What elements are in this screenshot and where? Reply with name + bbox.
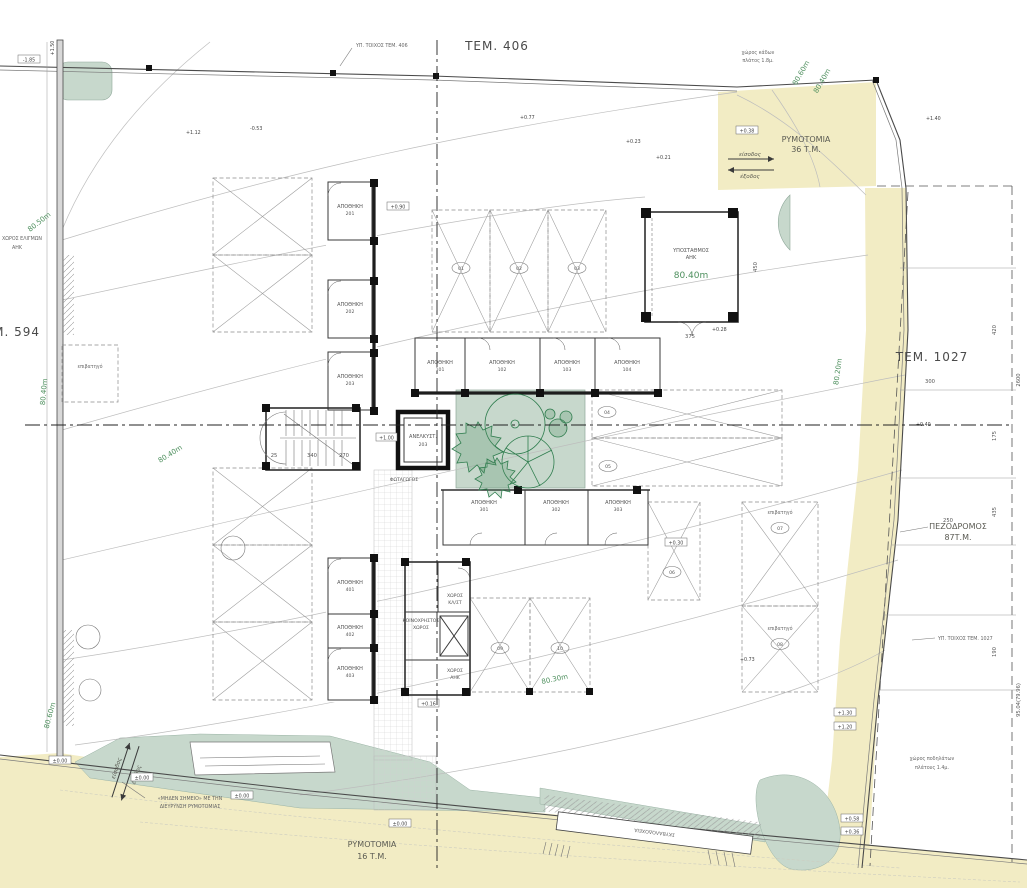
parcel-right-label: ΤΕΜ. 1027 xyxy=(895,350,968,364)
room-mid1-name: ΑΠΟΘΗΚΗ xyxy=(427,360,453,366)
room-mid3-name: ΑΠΟΘΗΚΗ xyxy=(554,360,580,366)
elevation-p021: +0.21 xyxy=(656,155,671,161)
substation-label-2: ΑΗΚ xyxy=(686,255,697,261)
room-court1-name: ΑΠΟΘΗΚΗ xyxy=(471,500,497,506)
room-nw2-num: 202 xyxy=(346,309,355,315)
stall-06: 06 xyxy=(669,570,675,576)
stall-03: 03 xyxy=(574,266,580,272)
elevation-p150: +1.50 xyxy=(50,41,56,56)
elevation-p130: +1.30 xyxy=(834,708,856,717)
access-exit-top: έξοδος xyxy=(740,173,760,180)
svg-text:±0.00: ±0.00 xyxy=(235,794,250,800)
contour-80-50: 80.50m xyxy=(26,211,52,234)
mech-room-label-2: ΚΛ/ΣΤ xyxy=(448,600,462,606)
note-bins-1: χώρος κάδων xyxy=(742,49,775,56)
elevation-p112: +1.12 xyxy=(186,130,201,136)
elevation-p140: +1.40 xyxy=(926,116,941,122)
elevation-p120: +1.20 xyxy=(834,722,856,731)
stall-type-right2: επιβατηγό xyxy=(767,625,792,632)
room-sw2-num: 402 xyxy=(346,632,355,638)
room-court2-num: 302 xyxy=(552,507,561,513)
substation-building: ΥΠΟΣΤΑΘΜΟΣ ΑΗΚ 80.40m xyxy=(641,208,738,336)
room-sw3-num: 403 xyxy=(346,673,355,679)
note-maneuver-1: ΧΩΡΟΣ ΕΛΙΓΜΩΝ xyxy=(2,236,42,242)
contour-80-40-left: 80.40m xyxy=(39,378,49,406)
room-court3-num: 303 xyxy=(614,507,623,513)
entrance-ramp xyxy=(190,742,335,775)
room-mid3-num: 103 xyxy=(563,367,572,373)
svg-text:±0.00: ±0.00 xyxy=(53,759,68,765)
room-nw3-name: ΑΠΟΘΗΚΗ xyxy=(337,374,363,380)
svg-text:±0.00: ±0.00 xyxy=(135,776,150,782)
room-nw1-num: 201 xyxy=(346,211,355,217)
elevation-zero-3: ±0.00 xyxy=(231,791,253,800)
zone-rymotomia-bottom-name: ΡΥΜΟΤΟΜΙΑ xyxy=(348,840,397,849)
parcel-top-label: ΤΕΜ. 406 xyxy=(464,39,529,53)
substation-label-1: ΥΠΟΣΤΑΘΜΟΣ xyxy=(672,248,709,254)
note-maneuver-2: ΑΗΚ xyxy=(12,245,23,251)
stall-05: 05 xyxy=(605,464,611,470)
room-nw2-name: ΑΠΟΘΗΚΗ xyxy=(337,302,363,308)
svg-text:±0.00: ±0.00 xyxy=(393,822,408,828)
mech-room-label-1: ΧΩΡΟΣ xyxy=(447,593,463,599)
contour-80-40-mid: 80.40m xyxy=(157,444,184,465)
elevation-p023: +0.23 xyxy=(626,139,641,145)
room-mid4-name: ΑΠΟΘΗΚΗ xyxy=(614,360,640,366)
elevation-p100-text: +1.00 xyxy=(379,436,394,442)
elevation-zero-4: ±0.00 xyxy=(389,819,411,828)
building-mid-row: ΑΠΟΘΗΚΗ 101 ΑΠΟΘΗΚΗ 102 ΑΠΟΘΗΚΗ 103 ΑΠΟΘ… xyxy=(411,338,662,397)
stall-10: 10 xyxy=(557,646,563,652)
zone-pezodromos: ΠΕΖΟΔΡΟΜΟΣ 87Τ.Μ. xyxy=(900,522,987,542)
note-top-wall: ΥΠ. ΤΟΙΧΟΣ ΤΕΜ. 406 xyxy=(355,43,408,49)
svg-text:+0.90: +0.90 xyxy=(391,205,406,211)
building-court-row: ΑΠΟΘΗΚΗ 301 ΑΠΟΘΗΚΗ 302 ΑΠΟΘΗΚΗ 303 xyxy=(441,486,650,545)
stall-type-left: επιβατηγό xyxy=(77,363,102,370)
zone-rymotomia-top-name: ΡΥΜΟΤΟΜΙΑ xyxy=(782,135,831,144)
dim-2600: 2600 xyxy=(1016,373,1022,386)
elevation-p030: +0.30 xyxy=(665,538,687,547)
elevation-p016-text: +0.16 xyxy=(421,702,436,708)
note-right-wall: ΥΠ. ΤΟΙΧΟΣ ΤΕΜ. 1027 xyxy=(937,636,993,642)
svg-text:+1.20: +1.20 xyxy=(838,725,853,731)
zone-pezodromos-area: 87Τ.Μ. xyxy=(944,533,971,542)
room-mid2-num: 102 xyxy=(498,367,507,373)
access-entry-top: είσοδος xyxy=(739,151,762,158)
elevator-num: 203 xyxy=(419,442,428,448)
dim-340: 340 xyxy=(307,453,317,459)
elevator-label: ΑΝΕΛΚΥΣΤ. xyxy=(409,434,437,440)
contour-80-60-topright: 80.60m xyxy=(791,59,811,86)
stall-09: 09 xyxy=(497,646,503,652)
elevation-p090: +0.90 xyxy=(387,202,409,211)
dim-total: 95.04(79.96) xyxy=(1016,683,1022,717)
contour-80-20-right: 80.20m xyxy=(832,358,844,386)
elevation-p077: +0.77 xyxy=(520,115,535,121)
site-plan-page: 420 175 435 190 2600 95.04(79.96) 300 25… xyxy=(0,0,1027,888)
stall-01: 01 xyxy=(458,266,464,272)
note-bins-2: πλάτος 1.8μ. xyxy=(742,57,773,64)
dim-300: 300 xyxy=(925,379,935,385)
elevation-p028: +0.28 xyxy=(712,327,727,333)
zone-pezodromos-name: ΠΕΖΟΔΡΟΜΟΣ xyxy=(929,522,987,531)
note-bike-1: χώρος ποδηλάτων xyxy=(910,755,955,762)
dim-270: 270 xyxy=(339,453,349,459)
svg-text:+0.36: +0.36 xyxy=(845,830,860,836)
dim-25: 25 xyxy=(271,453,278,459)
building-nw-block: ΑΠΟΘΗΚΗ 201 ΑΠΟΘΗΚΗ 202 ΑΠΟΘΗΚΗ 203 xyxy=(326,179,378,415)
svg-text:+0.30: +0.30 xyxy=(669,541,684,547)
elevation-p073: +0.73 xyxy=(740,657,755,663)
room-sw2-name: ΑΠΟΘΗΚΗ xyxy=(337,625,363,631)
elevation-p040: +0.40 xyxy=(916,422,931,428)
stall-02: 02 xyxy=(516,266,522,272)
elevation-p058: +0.58 xyxy=(841,814,863,823)
room-court1-num: 301 xyxy=(480,507,489,513)
elevation-m185: -1.85 xyxy=(18,55,40,64)
lightwell-label: ΦΩΤΑΓΩΓΟΣ xyxy=(390,477,418,483)
room-nw1-name: ΑΠΟΘΗΚΗ xyxy=(337,204,363,210)
dim-175: 175 xyxy=(992,431,998,441)
room-court3-name: ΑΠΟΘΗΚΗ xyxy=(605,500,631,506)
elevation-zero-2: ±0.00 xyxy=(131,773,153,782)
contour-80-30-bottom: 80.30m xyxy=(541,673,569,686)
elevation-p016: +0.16 xyxy=(418,699,439,708)
room-mid2-name: ΑΠΟΘΗΚΗ xyxy=(489,360,515,366)
room-nw3-num: 203 xyxy=(346,381,355,387)
contour-label-substation: 80.40m xyxy=(674,271,709,281)
svg-text:+1.30: +1.30 xyxy=(838,711,853,717)
ahk-room-label-1: ΧΩΡΟΣ xyxy=(447,668,463,674)
room-sw1-num: 401 xyxy=(346,587,355,593)
room-mid4-num: 104 xyxy=(623,367,632,373)
dim-450: 450 xyxy=(753,262,759,272)
room-court2-name: ΑΠΟΘΗΚΗ xyxy=(543,500,569,506)
stall-07: 07 xyxy=(777,526,783,532)
room-sw3-name: ΑΠΟΘΗΚΗ xyxy=(337,666,363,672)
svg-text:+0.38: +0.38 xyxy=(740,129,755,135)
stall-type-right1: επιβατηγό xyxy=(767,509,792,516)
parcel-left-label: ΤΕΜ. 594 xyxy=(0,325,40,339)
dim-190: 190 xyxy=(992,647,998,657)
common-room-label-2: ΧΩΡΟΣ xyxy=(413,625,429,631)
dim-435: 435 xyxy=(992,507,998,517)
dim-420: 420 xyxy=(992,325,998,335)
stall-04: 04 xyxy=(604,410,610,416)
stall-08: 08 xyxy=(777,642,783,648)
elevation-p036: +0.36 xyxy=(841,827,863,836)
room-sw1-name: ΑΠΟΘΗΚΗ xyxy=(337,580,363,586)
ahk-room-label-2: ΑΗΚ xyxy=(450,675,461,681)
stair-core: 25 340 270 xyxy=(260,404,360,470)
building-sw-block: ΑΠΟΘΗΚΗ 401 ΑΠΟΘΗΚΗ 402 ΑΠΟΘΗΚΗ 403 xyxy=(326,554,378,704)
site-plan-svg: 420 175 435 190 2600 95.04(79.96) 300 25… xyxy=(0,0,1027,888)
svg-text:+0.58: +0.58 xyxy=(845,817,860,823)
elevation-zero-1: ±0.00 xyxy=(49,756,71,765)
note-zero-point-2: ΔΙΕΥΡΥΝΣΗ ΡΥΜΟΤΟΜΙΑΣ xyxy=(160,804,221,810)
zone-rymotomia-bottom-area: 16 Τ.Μ. xyxy=(357,852,387,861)
elevation-p100: +1.00 xyxy=(376,433,397,442)
elevation-m053: -0.53 xyxy=(250,126,262,132)
note-bike-2: πλάτους 1.4μ. xyxy=(915,764,949,771)
zone-rymotomia-top-area: 36 Τ.Μ. xyxy=(791,145,821,154)
dim-375: 375 xyxy=(685,334,695,340)
note-zero-point-1: «ΜΗΔΕΝ ΣΗΜΕΙΟ» ΜΕ ΤΗΝ xyxy=(158,796,223,802)
svg-text:-1.85: -1.85 xyxy=(23,58,35,64)
contour-80-60-bottomleft: 80.60m xyxy=(43,701,58,729)
elevation-p038: +0.38 xyxy=(736,126,758,135)
common-room-label-1: ΚΟΙΝΟΧΡΗΣΤΟΣ xyxy=(403,618,440,624)
